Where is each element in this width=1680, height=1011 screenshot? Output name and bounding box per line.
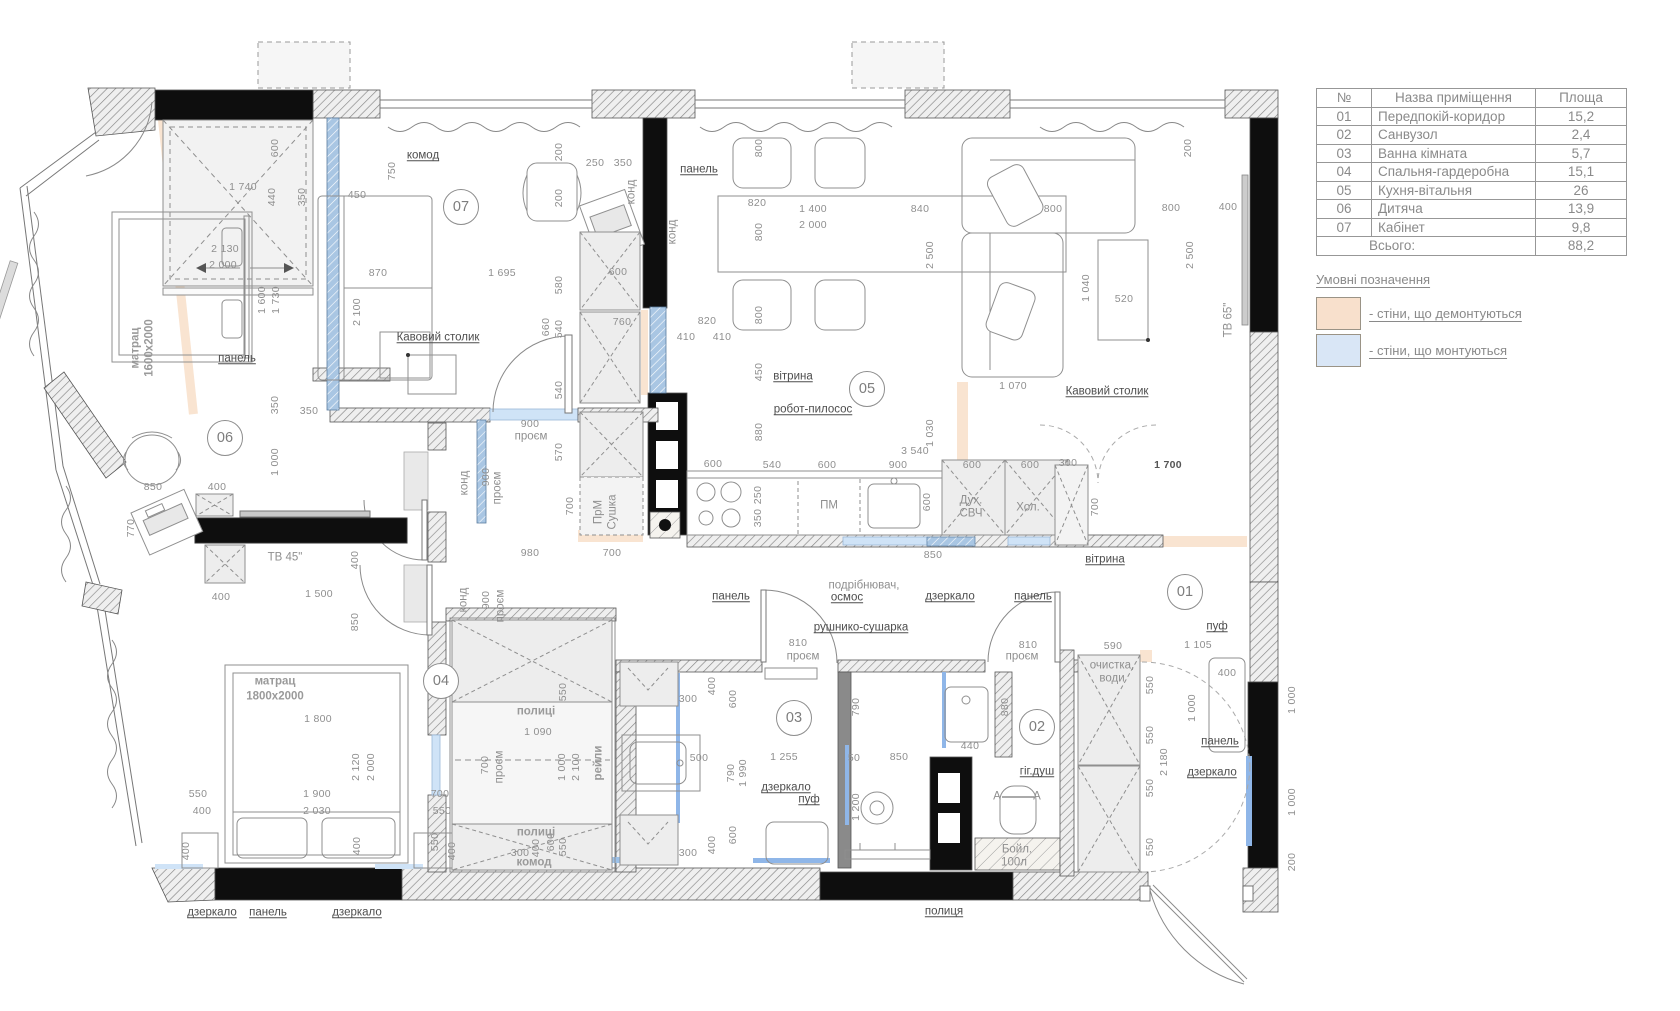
dimension-label: 900 bbox=[481, 468, 492, 486]
dimension-label: 1 000 bbox=[1287, 686, 1298, 714]
dimension-label: 200 bbox=[1183, 139, 1194, 157]
legend-label: - стіни, що демонтуються bbox=[1369, 306, 1522, 321]
dimension-label: 660 bbox=[541, 318, 552, 336]
dimension-label: 1 105 bbox=[1184, 640, 1212, 651]
dimension-label: 2 000 bbox=[799, 220, 827, 231]
annotation-label: пуф bbox=[798, 794, 819, 806]
dimension-label: 810 bbox=[789, 638, 807, 649]
dimension-label: 550 bbox=[1145, 726, 1156, 744]
table-cell: Спальня-гардеробна bbox=[1372, 163, 1536, 182]
dimension-label: 1 500 bbox=[305, 589, 333, 600]
dimension-label: 700 bbox=[431, 789, 449, 800]
room-number-01: 01 bbox=[1167, 574, 1203, 610]
dimension-label: 600 bbox=[728, 826, 739, 844]
table-cell: Дитяча bbox=[1372, 200, 1536, 219]
dimension-label: 450 bbox=[754, 363, 765, 381]
annotation-label: A bbox=[1033, 791, 1041, 803]
annotation-label: проєм bbox=[494, 751, 506, 784]
annotation-label: дзеркало bbox=[187, 907, 237, 919]
dimension-label: 200 bbox=[554, 189, 565, 207]
table-cell: 07 bbox=[1317, 218, 1372, 237]
dimension-label: 350 bbox=[270, 396, 281, 414]
annotation-label: дзеркало bbox=[761, 782, 811, 794]
annotation-label: комод bbox=[407, 150, 439, 162]
dimension-label: 550 bbox=[1145, 676, 1156, 694]
table-cell: 01 bbox=[1317, 107, 1372, 126]
room-number-06: 06 bbox=[207, 420, 243, 456]
dimension-label: 1 000 bbox=[1287, 788, 1298, 816]
annotation-label: осмос bbox=[831, 592, 863, 604]
dimension-label: 1 090 bbox=[524, 727, 552, 738]
dimension-label: 800 bbox=[754, 223, 765, 241]
dimension-label: 1 695 bbox=[488, 268, 516, 279]
annotation-label: Бойл. bbox=[1002, 844, 1032, 856]
dimension-label: 600 bbox=[1021, 460, 1039, 471]
annotation-label: конд bbox=[626, 180, 638, 205]
dimension-label: 2 030 bbox=[303, 806, 331, 817]
table-cell: 15,1 bbox=[1536, 163, 1627, 182]
dimension-label: 550 bbox=[189, 789, 207, 800]
room-number-02: 02 bbox=[1019, 709, 1055, 745]
annotation-label: ТВ 65" bbox=[1223, 303, 1235, 338]
table-cell: 13,9 bbox=[1536, 200, 1627, 219]
dimension-label: 540 bbox=[554, 320, 565, 338]
annotation-label: проєм bbox=[515, 431, 548, 443]
legend-label: - стіни, що монтуються bbox=[1369, 343, 1507, 358]
dimension-label: 400 bbox=[531, 839, 542, 857]
dimension-label: 540 bbox=[554, 381, 565, 399]
table-cell: Кухня-вітальня bbox=[1372, 181, 1536, 200]
annotation-label: панель bbox=[680, 164, 718, 176]
annotation-label: подрібнювач, bbox=[829, 580, 900, 592]
dimension-label: 3 540 bbox=[901, 446, 929, 457]
dimension-label: 400 bbox=[1219, 202, 1237, 213]
dimension-label: 600 bbox=[818, 460, 836, 471]
dimension-label: 50 bbox=[848, 753, 860, 764]
annotation-label: рушнико-сушарка bbox=[814, 622, 909, 634]
legend-items: - стіни, що демонтуються- стіни, що монт… bbox=[1316, 297, 1522, 367]
dimension-label: 900 bbox=[481, 591, 492, 609]
table-header-cell: Назва приміщення bbox=[1372, 89, 1536, 108]
dimension-label: 850 bbox=[350, 613, 361, 631]
annotation-label: полиці bbox=[517, 827, 555, 839]
table-cell: 2,4 bbox=[1536, 126, 1627, 145]
legend-item: - стіни, що монтуються bbox=[1316, 334, 1522, 367]
dimension-label: 520 bbox=[1115, 294, 1133, 305]
table-cell: Кабінет bbox=[1372, 218, 1536, 237]
dimension-label: 300 bbox=[679, 694, 697, 705]
room-number-text: 07 bbox=[453, 199, 469, 215]
dimension-label: 2 130 bbox=[211, 244, 239, 255]
dimension-label: 570 bbox=[554, 443, 565, 461]
dimension-label: 350 bbox=[300, 406, 318, 417]
room-number-text: 03 bbox=[786, 710, 802, 726]
table-header-cell: № bbox=[1317, 89, 1372, 108]
legend-item: - стіни, що демонтуються bbox=[1316, 297, 1522, 330]
dimension-label: 870 bbox=[369, 268, 387, 279]
dimension-label: 350 bbox=[753, 509, 764, 527]
dimension-label: 850 bbox=[890, 752, 908, 763]
dimension-label: 800 bbox=[1162, 203, 1180, 214]
annotation-label: проєм bbox=[787, 651, 820, 663]
dimension-label: 800 bbox=[1044, 204, 1062, 215]
dimension-label: 400 bbox=[707, 836, 718, 854]
annotation-label: 100л bbox=[1001, 857, 1027, 869]
dimension-label: 250 bbox=[586, 158, 604, 169]
dimension-label: 1 040 bbox=[1081, 274, 1092, 302]
table-row: 02Санвузол2,4 bbox=[1317, 126, 1627, 145]
table-cell: 03 bbox=[1317, 144, 1372, 163]
annotation-label: Хол. bbox=[1016, 502, 1040, 514]
room-number-text: 05 bbox=[859, 381, 875, 397]
table-cell: Передпокій-коридор bbox=[1372, 107, 1536, 126]
legend-swatch bbox=[1316, 334, 1361, 367]
table-cell: 02 bbox=[1317, 126, 1372, 145]
dimension-label: 580 bbox=[554, 276, 565, 294]
room-number-text: 01 bbox=[1177, 584, 1193, 600]
annotation-label: проєм bbox=[492, 472, 504, 505]
room-number-text: 02 bbox=[1029, 719, 1045, 735]
table-row: 01Передпокій-коридор15,2 bbox=[1317, 107, 1627, 126]
room-number-04: 04 bbox=[423, 663, 459, 699]
dimension-label: 500 bbox=[690, 753, 708, 764]
dimension-label: 600 bbox=[922, 493, 933, 511]
dimension-label: 350 bbox=[614, 158, 632, 169]
table-cell: Ванна кімната bbox=[1372, 144, 1536, 163]
table-total-value: 88,2 bbox=[1536, 237, 1627, 256]
annotation-label: ТВ 45" bbox=[268, 552, 303, 564]
dimension-label: 600 bbox=[270, 139, 281, 157]
dimension-label: 400 bbox=[212, 592, 230, 603]
dimension-label: 2 500 bbox=[1185, 241, 1196, 269]
dimension-label: 2 100 bbox=[571, 753, 582, 781]
dimension-label: 1 800 bbox=[304, 714, 332, 725]
table-row: 07Кабінет9,8 bbox=[1317, 218, 1627, 237]
dimension-label: 2 180 bbox=[1159, 748, 1170, 776]
dimension-label: 800 bbox=[754, 139, 765, 157]
table-cell: 5,7 bbox=[1536, 144, 1627, 163]
legend-swatch bbox=[1316, 297, 1361, 330]
annotation-label: панель bbox=[712, 591, 750, 603]
dimension-label: 400 bbox=[193, 806, 211, 817]
table-row: 04Спальня-гардеробна15,1 bbox=[1317, 163, 1627, 182]
dimension-label: 770 bbox=[126, 519, 137, 537]
dimension-label: 1 900 bbox=[303, 789, 331, 800]
table-row: 03Ванна кімната5,7 bbox=[1317, 144, 1627, 163]
annotation-label: СВЧ bbox=[959, 508, 982, 520]
dimension-label: 700 bbox=[565, 497, 576, 515]
dimension-label: 550 bbox=[558, 683, 569, 701]
dimension-label: 1 600 bbox=[257, 286, 268, 314]
table-cell: 05 bbox=[1317, 181, 1372, 200]
table-cell: Санвузол bbox=[1372, 126, 1536, 145]
annotation-label: Кавовий столик bbox=[397, 332, 480, 344]
dimension-label: 250 bbox=[753, 486, 764, 504]
table-row: 05Кухня-вітальня26 bbox=[1317, 181, 1627, 200]
dimension-label: 350 bbox=[297, 188, 308, 206]
annotation-label: дзеркало bbox=[1187, 767, 1237, 779]
dimension-label: 600 bbox=[728, 690, 739, 708]
annotation-label: рейли bbox=[593, 746, 605, 781]
table-total-label: Всього: bbox=[1317, 237, 1536, 256]
annotation-label: полиця bbox=[925, 906, 963, 918]
dimension-label: 2 120 bbox=[351, 753, 362, 781]
room-number-07: 07 bbox=[443, 189, 479, 225]
annotation-label: води bbox=[1099, 673, 1124, 685]
room-area-table: №Назва приміщенняПлоща 01Передпокій-кори… bbox=[1316, 88, 1627, 256]
annotation-label: панель bbox=[249, 907, 287, 919]
annotation-label: вітрина bbox=[773, 371, 813, 383]
dimension-label: 1 730 bbox=[271, 286, 282, 314]
dimension-label: 540 bbox=[763, 460, 781, 471]
dimension-label: 900 bbox=[889, 460, 907, 471]
annotation-label: конд bbox=[667, 220, 679, 245]
dimension-label: 400 bbox=[447, 842, 458, 860]
dimension-label: 410 bbox=[713, 332, 731, 343]
dimension-label: 880 bbox=[754, 423, 765, 441]
dimension-label: 400 bbox=[707, 677, 718, 695]
room-number-text: 06 bbox=[217, 430, 233, 446]
dimension-label: 700 bbox=[1090, 498, 1101, 516]
dimension-label: 900 bbox=[521, 419, 539, 430]
dimension-label: 440 bbox=[961, 741, 979, 752]
annotation-label: Дух. bbox=[960, 495, 983, 507]
dimension-label: 850 bbox=[924, 550, 942, 561]
dimension-label: 600 bbox=[963, 460, 981, 471]
annotation-label: конд bbox=[458, 588, 470, 613]
dimension-label: 790 bbox=[851, 698, 862, 716]
dimension-label: 400 bbox=[208, 482, 226, 493]
legend: Умовні позначення - стіни, що демонтують… bbox=[1316, 272, 1522, 371]
dimension-label: 550 bbox=[1145, 779, 1156, 797]
dimension-label: 980 bbox=[521, 548, 539, 559]
dimension-label: 440 bbox=[267, 188, 278, 206]
dimension-label: 400 bbox=[181, 842, 192, 860]
dimension-label: 550 bbox=[433, 806, 451, 817]
dimension-label: 840 bbox=[911, 204, 929, 215]
annotation-label: полиці bbox=[517, 706, 555, 718]
dimension-label: 1 000 bbox=[270, 448, 281, 476]
floor-plan-page: 6001 7404403504507502 1302 0001 6001 730… bbox=[0, 0, 1680, 1011]
annotation-label: проєм bbox=[495, 590, 507, 623]
annotation-label: очистка, bbox=[1090, 660, 1134, 672]
table-header-cell: Площа bbox=[1536, 89, 1627, 108]
dimension-label: 1 740 bbox=[229, 182, 257, 193]
dimension-label: 1 255 bbox=[770, 752, 798, 763]
dimension-label: 700 bbox=[480, 756, 491, 774]
annotation-label: Кавовий столик bbox=[1066, 386, 1149, 398]
dimension-label: 400 bbox=[352, 837, 363, 855]
annotation-label: конд bbox=[459, 471, 471, 496]
annotation-label: гіг.душ bbox=[1020, 766, 1054, 778]
annotation-label: панель bbox=[218, 353, 256, 365]
annotation-label: панель bbox=[1201, 736, 1239, 748]
annotation-label: ПрМ bbox=[593, 500, 605, 524]
dimension-label: 820 bbox=[748, 198, 766, 209]
dimension-label: 1 400 bbox=[799, 204, 827, 215]
dimension-label: 2 100 bbox=[352, 298, 363, 326]
dimension-label: 1 070 bbox=[999, 381, 1027, 392]
annotation-label: ПМ bbox=[820, 500, 838, 512]
dimension-label: 300 bbox=[679, 848, 697, 859]
dimension-label: 400 bbox=[350, 551, 361, 569]
dimension-label: 550 bbox=[558, 838, 569, 856]
table-cell: 26 bbox=[1536, 181, 1627, 200]
dimension-label: 600 bbox=[704, 459, 722, 470]
dimension-label: 880 bbox=[1000, 698, 1011, 716]
annotation-label: Сушка bbox=[607, 495, 619, 530]
dimension-label: 850 bbox=[144, 482, 162, 493]
annotation-label: дзеркало bbox=[925, 591, 975, 603]
dimension-label: 2 500 bbox=[925, 241, 936, 269]
room-number-03: 03 bbox=[776, 700, 812, 736]
dimension-label: 590 bbox=[1104, 641, 1122, 652]
room-table-body: 01Передпокій-коридор15,202Санвузол2,403В… bbox=[1317, 107, 1627, 237]
dimension-label: 600 bbox=[609, 267, 627, 278]
dimension-label: 400 bbox=[1218, 668, 1236, 679]
table-row: 06Дитяча13,9 bbox=[1317, 200, 1627, 219]
dimension-label: 820 bbox=[698, 316, 716, 327]
dimension-label: 700 bbox=[603, 548, 621, 559]
annotation-label: комод bbox=[516, 857, 551, 869]
room-number-text: 04 bbox=[433, 673, 449, 689]
annotation-label: проєм bbox=[1006, 651, 1039, 663]
annotation-label: матрац bbox=[255, 676, 296, 688]
dimension-label: 790 bbox=[726, 764, 737, 782]
dimension-label: 800 bbox=[754, 306, 765, 324]
table-cell: 06 bbox=[1317, 200, 1372, 219]
annotation-label: пуф bbox=[1206, 621, 1227, 633]
dimension-label: 550 bbox=[1145, 838, 1156, 856]
table-total-row: Всього:88,2 bbox=[1317, 237, 1627, 256]
dimension-label: 810 bbox=[1019, 640, 1037, 651]
annotation-label: робот-пилосос bbox=[774, 404, 853, 416]
dimension-label: 1 030 bbox=[925, 419, 936, 447]
dimension-label: 200 bbox=[554, 143, 565, 161]
dimension-label: 2 000 bbox=[209, 260, 237, 271]
dimension-label: 1 990 bbox=[738, 759, 749, 787]
dimension-label: 550 bbox=[430, 833, 441, 851]
annotation-label: 1800х2000 bbox=[246, 691, 304, 703]
annotation-label: панель bbox=[1014, 591, 1052, 603]
table-cell: 15,2 bbox=[1536, 107, 1627, 126]
dimension-label: 2 000 bbox=[366, 753, 377, 781]
dimension-label: 410 bbox=[677, 332, 695, 343]
annotation-label: вітрина bbox=[1085, 554, 1125, 566]
table-cell: 04 bbox=[1317, 163, 1372, 182]
dimension-label: 1 000 bbox=[1187, 694, 1198, 722]
dimension-label: 760 bbox=[613, 317, 631, 328]
room-number-05: 05 bbox=[849, 371, 885, 407]
dimension-label: 300 bbox=[1059, 458, 1077, 469]
dimension-label: 450 bbox=[348, 190, 366, 201]
dimension-label: 750 bbox=[387, 162, 398, 180]
dimension-label: 1 000 bbox=[557, 753, 568, 781]
annotation-label: 1600х2000 bbox=[144, 319, 156, 377]
room-table-header: №Назва приміщенняПлоща bbox=[1317, 89, 1627, 108]
table-cell: 9,8 bbox=[1536, 218, 1627, 237]
dimension-label: 200 bbox=[1287, 853, 1298, 871]
legend-title: Умовні позначення bbox=[1316, 272, 1522, 287]
annotation-label: A bbox=[993, 791, 1001, 803]
annotation-label: дзеркало bbox=[332, 907, 382, 919]
annotation-label: матрац bbox=[130, 328, 142, 369]
dimension-label: 1 200 bbox=[851, 793, 862, 821]
room-table-footer: Всього:88,2 bbox=[1317, 237, 1627, 256]
dimension-label: 1 700 bbox=[1154, 460, 1182, 471]
